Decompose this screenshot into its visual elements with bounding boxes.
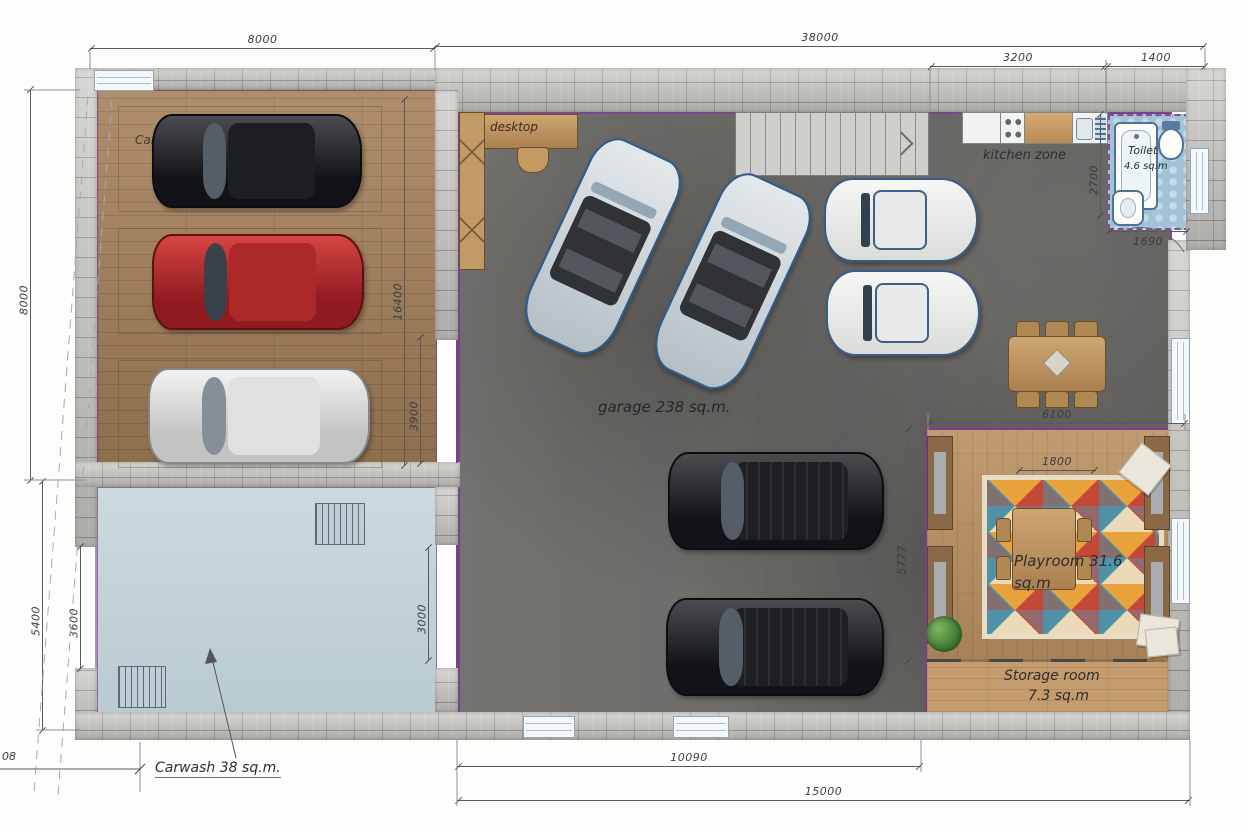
storage-label-2: 7.3 sq.m bbox=[1028, 688, 1089, 704]
dim-left-upper: 8000 bbox=[30, 90, 31, 480]
dim-label: 1400 bbox=[1141, 51, 1171, 64]
car-white-classic-1 bbox=[824, 178, 978, 262]
desk-label: desktop bbox=[490, 120, 538, 134]
window-right-playroom bbox=[1171, 518, 1190, 604]
garage-label: garage 238 sq.m. bbox=[598, 398, 730, 416]
storage-door-sill bbox=[927, 659, 1166, 662]
play-mat bbox=[1145, 626, 1180, 657]
kitchen-label: kitchen zone bbox=[983, 148, 1066, 163]
storage-label-1: Storage room bbox=[1004, 668, 1100, 684]
window-wing-top bbox=[94, 70, 154, 91]
dining-chair bbox=[1074, 391, 1098, 408]
opening-carwash-garage bbox=[456, 545, 458, 668]
wall-carwash-garage-lower bbox=[435, 668, 458, 712]
car-black-hatch bbox=[152, 114, 362, 208]
dim-wing-top: 8000 bbox=[90, 48, 435, 49]
car-silver-wagon bbox=[148, 368, 370, 464]
window-bottom-2 bbox=[673, 716, 729, 738]
dim-toilet-side: 2700 bbox=[1100, 115, 1101, 215]
wall-wing-garage-upper bbox=[435, 90, 458, 340]
playroom-label-1: Playroom 31.6 bbox=[1014, 552, 1123, 570]
car-black-suv-1 bbox=[668, 452, 884, 550]
dim-label: 6100 bbox=[1042, 408, 1072, 421]
window-bottom-1 bbox=[523, 716, 575, 738]
dim-toilet-width: 1690 bbox=[1108, 231, 1188, 232]
toilet-wc bbox=[1158, 128, 1184, 160]
dim-carwash-door: 3600 bbox=[80, 547, 81, 668]
dim-label: 2700 bbox=[1088, 165, 1101, 195]
dim-label: 3900 bbox=[408, 401, 421, 431]
kitchen-cooktop bbox=[1000, 112, 1026, 144]
dim-label: 15000 bbox=[805, 785, 843, 798]
toilet-label-1: Toilet bbox=[1128, 144, 1157, 157]
carwash-label: Carwash 38 sq.m. bbox=[155, 760, 281, 778]
drain-grate bbox=[118, 666, 166, 708]
dim-garage-bottom: 10090 bbox=[457, 766, 921, 767]
dim-building-bottom: 15000 bbox=[457, 800, 1190, 801]
opening-carwash-left bbox=[95, 547, 97, 668]
kitchen-cabinet bbox=[962, 112, 1002, 144]
toilet-sink bbox=[1112, 190, 1144, 226]
wall-shelf bbox=[459, 112, 485, 270]
dining-chair bbox=[1016, 391, 1040, 408]
dining-chair bbox=[1045, 391, 1069, 408]
dim-toilet-top: 1400 bbox=[1106, 66, 1206, 67]
window-right-dining bbox=[1171, 338, 1190, 424]
wall-bottom bbox=[75, 712, 1190, 740]
dim-label: 3000 bbox=[416, 604, 429, 634]
car-red-sedan bbox=[152, 234, 364, 330]
kids-chair bbox=[1077, 518, 1092, 542]
kitchen-counter bbox=[1024, 112, 1074, 144]
kitchen-sink bbox=[1072, 112, 1108, 144]
desk-chair bbox=[517, 147, 549, 173]
dim-label: 16400 bbox=[392, 283, 405, 321]
dim-label: 5400 bbox=[30, 606, 43, 636]
car-white-classic-2 bbox=[826, 270, 980, 356]
dim-label: 5777 bbox=[896, 545, 909, 575]
wall-top-main bbox=[435, 68, 1226, 112]
dim-label: 1690 bbox=[1133, 235, 1163, 248]
floor-plan: Carshine Land desktop kitchen zone Toile… bbox=[0, 0, 1248, 832]
kids-chair bbox=[996, 556, 1011, 580]
dim-wing-inner-long: 16400 bbox=[404, 100, 405, 465]
car-black-suv-2 bbox=[666, 598, 884, 696]
dim-label: 10090 bbox=[670, 751, 708, 764]
dim-label: 3600 bbox=[68, 608, 81, 638]
dim-label: 1800 bbox=[1042, 455, 1072, 468]
dim-kitchen-top: 3200 bbox=[930, 66, 1106, 67]
dim-main-top: 38000 bbox=[435, 46, 1205, 47]
dim-playroom-side: 5777 bbox=[908, 430, 909, 660]
drain-grate bbox=[315, 503, 365, 545]
dim-label: 8000 bbox=[248, 33, 278, 46]
dim-wing-inner-door: 3900 bbox=[420, 338, 421, 463]
dim-playroom-inner: 1800 bbox=[1018, 470, 1096, 471]
wall-carwash-garage-upper bbox=[435, 487, 458, 545]
dim-playroom-top: 6100 bbox=[928, 423, 1186, 424]
dim-label: 8000 bbox=[18, 285, 31, 315]
window-toilet-right bbox=[1190, 148, 1209, 214]
plant bbox=[926, 616, 962, 652]
dim-label: 38000 bbox=[801, 31, 839, 44]
dim-left-lower: 5400 bbox=[42, 482, 43, 730]
playroom-label-2: sq.m bbox=[1014, 574, 1051, 592]
kids-chair bbox=[996, 518, 1011, 542]
dim-label: 3200 bbox=[1003, 51, 1033, 64]
playroom-bench bbox=[927, 436, 953, 530]
toilet-label-2: 4.6 sq.m bbox=[1124, 161, 1168, 172]
dim-carwash-side: 3000 bbox=[428, 548, 429, 660]
wall-right-main bbox=[1168, 240, 1190, 740]
edge-partial-dimension: 08 bbox=[2, 750, 16, 763]
opening-wing-garage bbox=[456, 340, 458, 463]
